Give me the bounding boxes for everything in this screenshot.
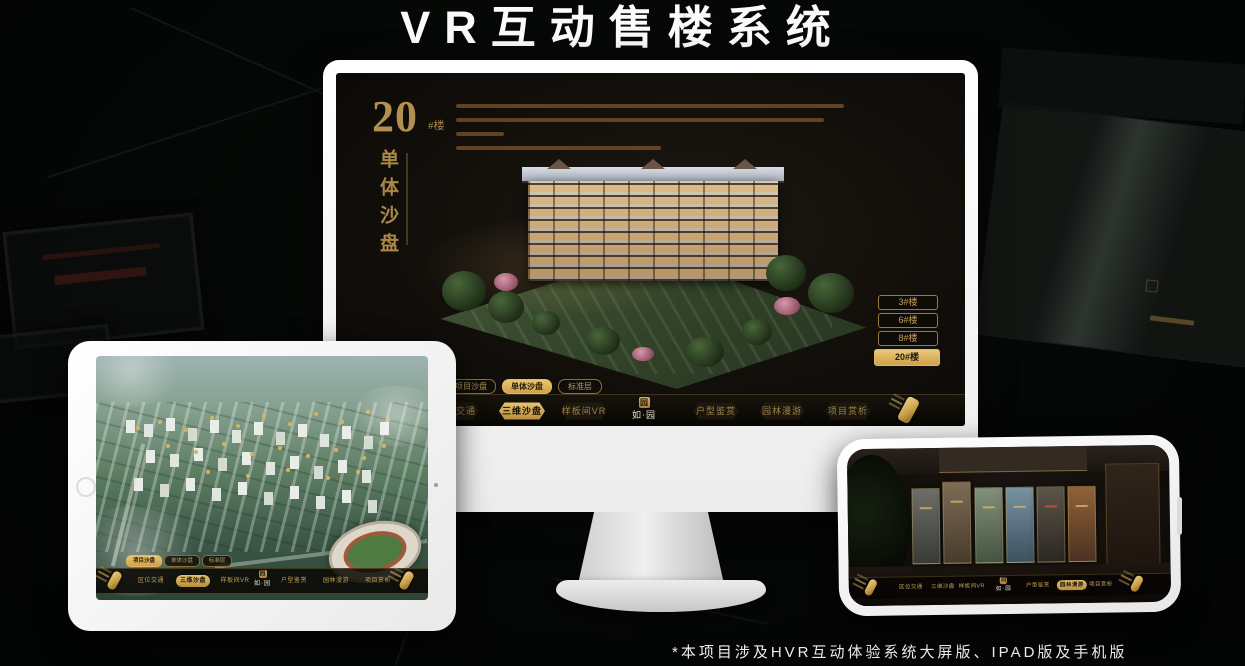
phone-nav-showroom-vr[interactable]: 样板间VR xyxy=(952,579,992,594)
ipad-nav-unit-gallery[interactable]: 户型鉴赏 xyxy=(272,573,316,589)
logo-seal-icon: 园 xyxy=(259,570,267,578)
panel-label xyxy=(1045,505,1057,507)
single-building-3d-scene[interactable] xyxy=(436,151,866,389)
panel-label xyxy=(1076,505,1088,507)
intro-text-line xyxy=(456,118,824,122)
sandbox-subtitle-vertical: 单体沙盘 xyxy=(374,149,401,261)
building-button-6[interactable]: 6#楼 xyxy=(878,313,938,328)
intro-text-line xyxy=(456,104,844,108)
ipad-nav-project-gallery[interactable]: 项目赏析 xyxy=(356,573,400,589)
nav-label: 区位交通 xyxy=(899,584,923,590)
building-number-suffix: #楼 xyxy=(428,117,445,133)
phone-navbar: 区位交通 三维沙盘 样板间VR 园 如·园 户型鉴赏 园林漫游 项目赏析 xyxy=(849,573,1171,599)
flower-shrub xyxy=(774,297,800,315)
background-map-line xyxy=(47,84,333,179)
scene-panel[interactable] xyxy=(974,487,1003,563)
building-button-20[interactable]: 20#楼 xyxy=(874,349,940,366)
ruyuan-logo: 园 如·园 xyxy=(632,397,656,421)
tree xyxy=(686,337,724,367)
building-button-3[interactable]: 3#楼 xyxy=(878,295,938,310)
background-river-photo xyxy=(975,102,1245,368)
scroll-icon[interactable] xyxy=(1129,574,1144,593)
nav-label: 项目赏析 xyxy=(365,578,391,584)
ipad-nav-location-traffic[interactable]: 区位交通 xyxy=(129,573,173,589)
background-grid-icon xyxy=(1145,279,1158,292)
ipad-camera-dot xyxy=(434,483,438,487)
tree xyxy=(766,255,806,291)
scroll-icon[interactable] xyxy=(863,578,878,597)
tree xyxy=(586,327,620,355)
nav-label: 样板间VR xyxy=(562,406,607,416)
nav-label: 三维沙盘 xyxy=(180,578,206,584)
panel-label xyxy=(920,507,932,509)
scroll-icon[interactable] xyxy=(897,395,921,424)
building-roof xyxy=(522,167,784,181)
ipad-nav-3d-sandbox[interactable]: 三维沙盘 xyxy=(171,573,215,589)
scene-panel[interactable] xyxy=(1036,486,1065,562)
scroll-icon[interactable] xyxy=(106,570,123,591)
scene-panel[interactable] xyxy=(1067,486,1096,562)
building-facade xyxy=(528,181,778,281)
nav-label: 户型鉴赏 xyxy=(1026,582,1050,588)
logo-name: 如·园 xyxy=(996,584,1012,592)
logo-seal-icon: 园 xyxy=(639,397,650,408)
stage: VR互动售楼系统 20 #楼 单体沙盘 xyxy=(0,0,1245,666)
scene-panel[interactable] xyxy=(942,482,971,564)
nav-label: 户型鉴赏 xyxy=(696,406,736,416)
nav-label: 三维沙盘 xyxy=(502,406,542,416)
nav-label: 样板间VR xyxy=(959,583,985,589)
intro-text-line xyxy=(456,146,661,150)
cloud-haze xyxy=(96,356,186,406)
monitor-stand-foot xyxy=(556,580,766,612)
ipad-nav-garden-roam[interactable]: 园林漫游 xyxy=(314,573,358,589)
phone-nav-project-gallery[interactable]: 项目赏析 xyxy=(1081,577,1121,592)
nav-label: 园林漫游 xyxy=(762,406,802,416)
ipad-home-button xyxy=(76,477,96,497)
flower-shrub xyxy=(632,347,654,361)
ruyuan-logo: 园 如·园 xyxy=(254,570,271,587)
building-model xyxy=(528,167,778,295)
ruyuan-logo: 园 如·园 xyxy=(996,577,1012,592)
tree xyxy=(488,291,524,323)
phone-screen: 区位交通 三维沙盘 样板间VR 园 如·园 户型鉴赏 园林漫游 项目赏析 xyxy=(847,445,1171,606)
nav-label: 园林漫游 xyxy=(323,578,349,584)
nav-label: 户型鉴赏 xyxy=(281,578,307,584)
nav-item-project-gallery[interactable]: 项目赏析 xyxy=(812,401,884,421)
nav-label: 区位交通 xyxy=(138,578,164,584)
logo-name: 如·园 xyxy=(632,408,656,421)
building-button-8[interactable]: 8#楼 xyxy=(878,331,938,346)
panel-label xyxy=(951,501,963,503)
logo-name: 如·园 xyxy=(254,578,271,587)
ipad-subtab-project-sandbox[interactable]: 项目沙盘 xyxy=(126,555,162,567)
scene-panel[interactable] xyxy=(1005,487,1034,563)
flower-shrub xyxy=(494,273,518,291)
ipad-screen: 项目沙盘 单体沙盘 标准层 区位交通 三维沙盘 样板间VR 园 如·园 户型鉴赏… xyxy=(96,356,428,600)
tree xyxy=(532,311,560,335)
intro-text-line xyxy=(456,132,504,136)
nav-label: 项目赏析 xyxy=(828,406,868,416)
tree xyxy=(742,319,772,345)
nav-label: 样板间VR xyxy=(221,578,250,584)
ipad-subtab-standard-floor[interactable]: 标准层 xyxy=(202,555,232,567)
nav-label: 项目赏析 xyxy=(1089,582,1113,588)
monitor-stand-neck xyxy=(578,512,724,584)
tree xyxy=(442,271,486,311)
nav-item-garden-roam[interactable]: 园林漫游 xyxy=(746,401,818,421)
residential-buildings xyxy=(126,420,135,433)
panel-label xyxy=(1014,506,1026,508)
scene-panel[interactable] xyxy=(911,488,940,564)
ceiling-beam xyxy=(939,446,1087,473)
ipad-subtab-single-sandbox[interactable]: 单体沙盘 xyxy=(164,555,200,567)
ipad-navbar: 区位交通 三维沙盘 样板间VR 园 如·园 户型鉴赏 园林漫游 项目赏析 xyxy=(96,568,428,593)
building-number-heading: 20 xyxy=(372,91,418,142)
tree xyxy=(808,273,854,313)
phone-side-button xyxy=(1177,497,1182,535)
page-title: VR互动售楼系统 xyxy=(0,2,1245,54)
scroll-icon[interactable] xyxy=(398,570,415,591)
footnote: *本项目涉及HVR互动体验系统大屏版、IPAD版及手机版 xyxy=(672,641,1127,662)
building-markers xyxy=(136,426,140,430)
panel-label xyxy=(983,506,995,508)
nav-item-unit-gallery[interactable]: 户型鉴赏 xyxy=(680,401,752,421)
subtab-standard-floor[interactable]: 标准层 xyxy=(558,379,602,394)
nav-item-showroom-vr[interactable]: 样板间VR xyxy=(548,401,620,421)
subtab-single-sandbox[interactable]: 单体沙盘 xyxy=(502,379,552,394)
ipad-nav-showroom-vr[interactable]: 样板间VR xyxy=(213,573,257,589)
